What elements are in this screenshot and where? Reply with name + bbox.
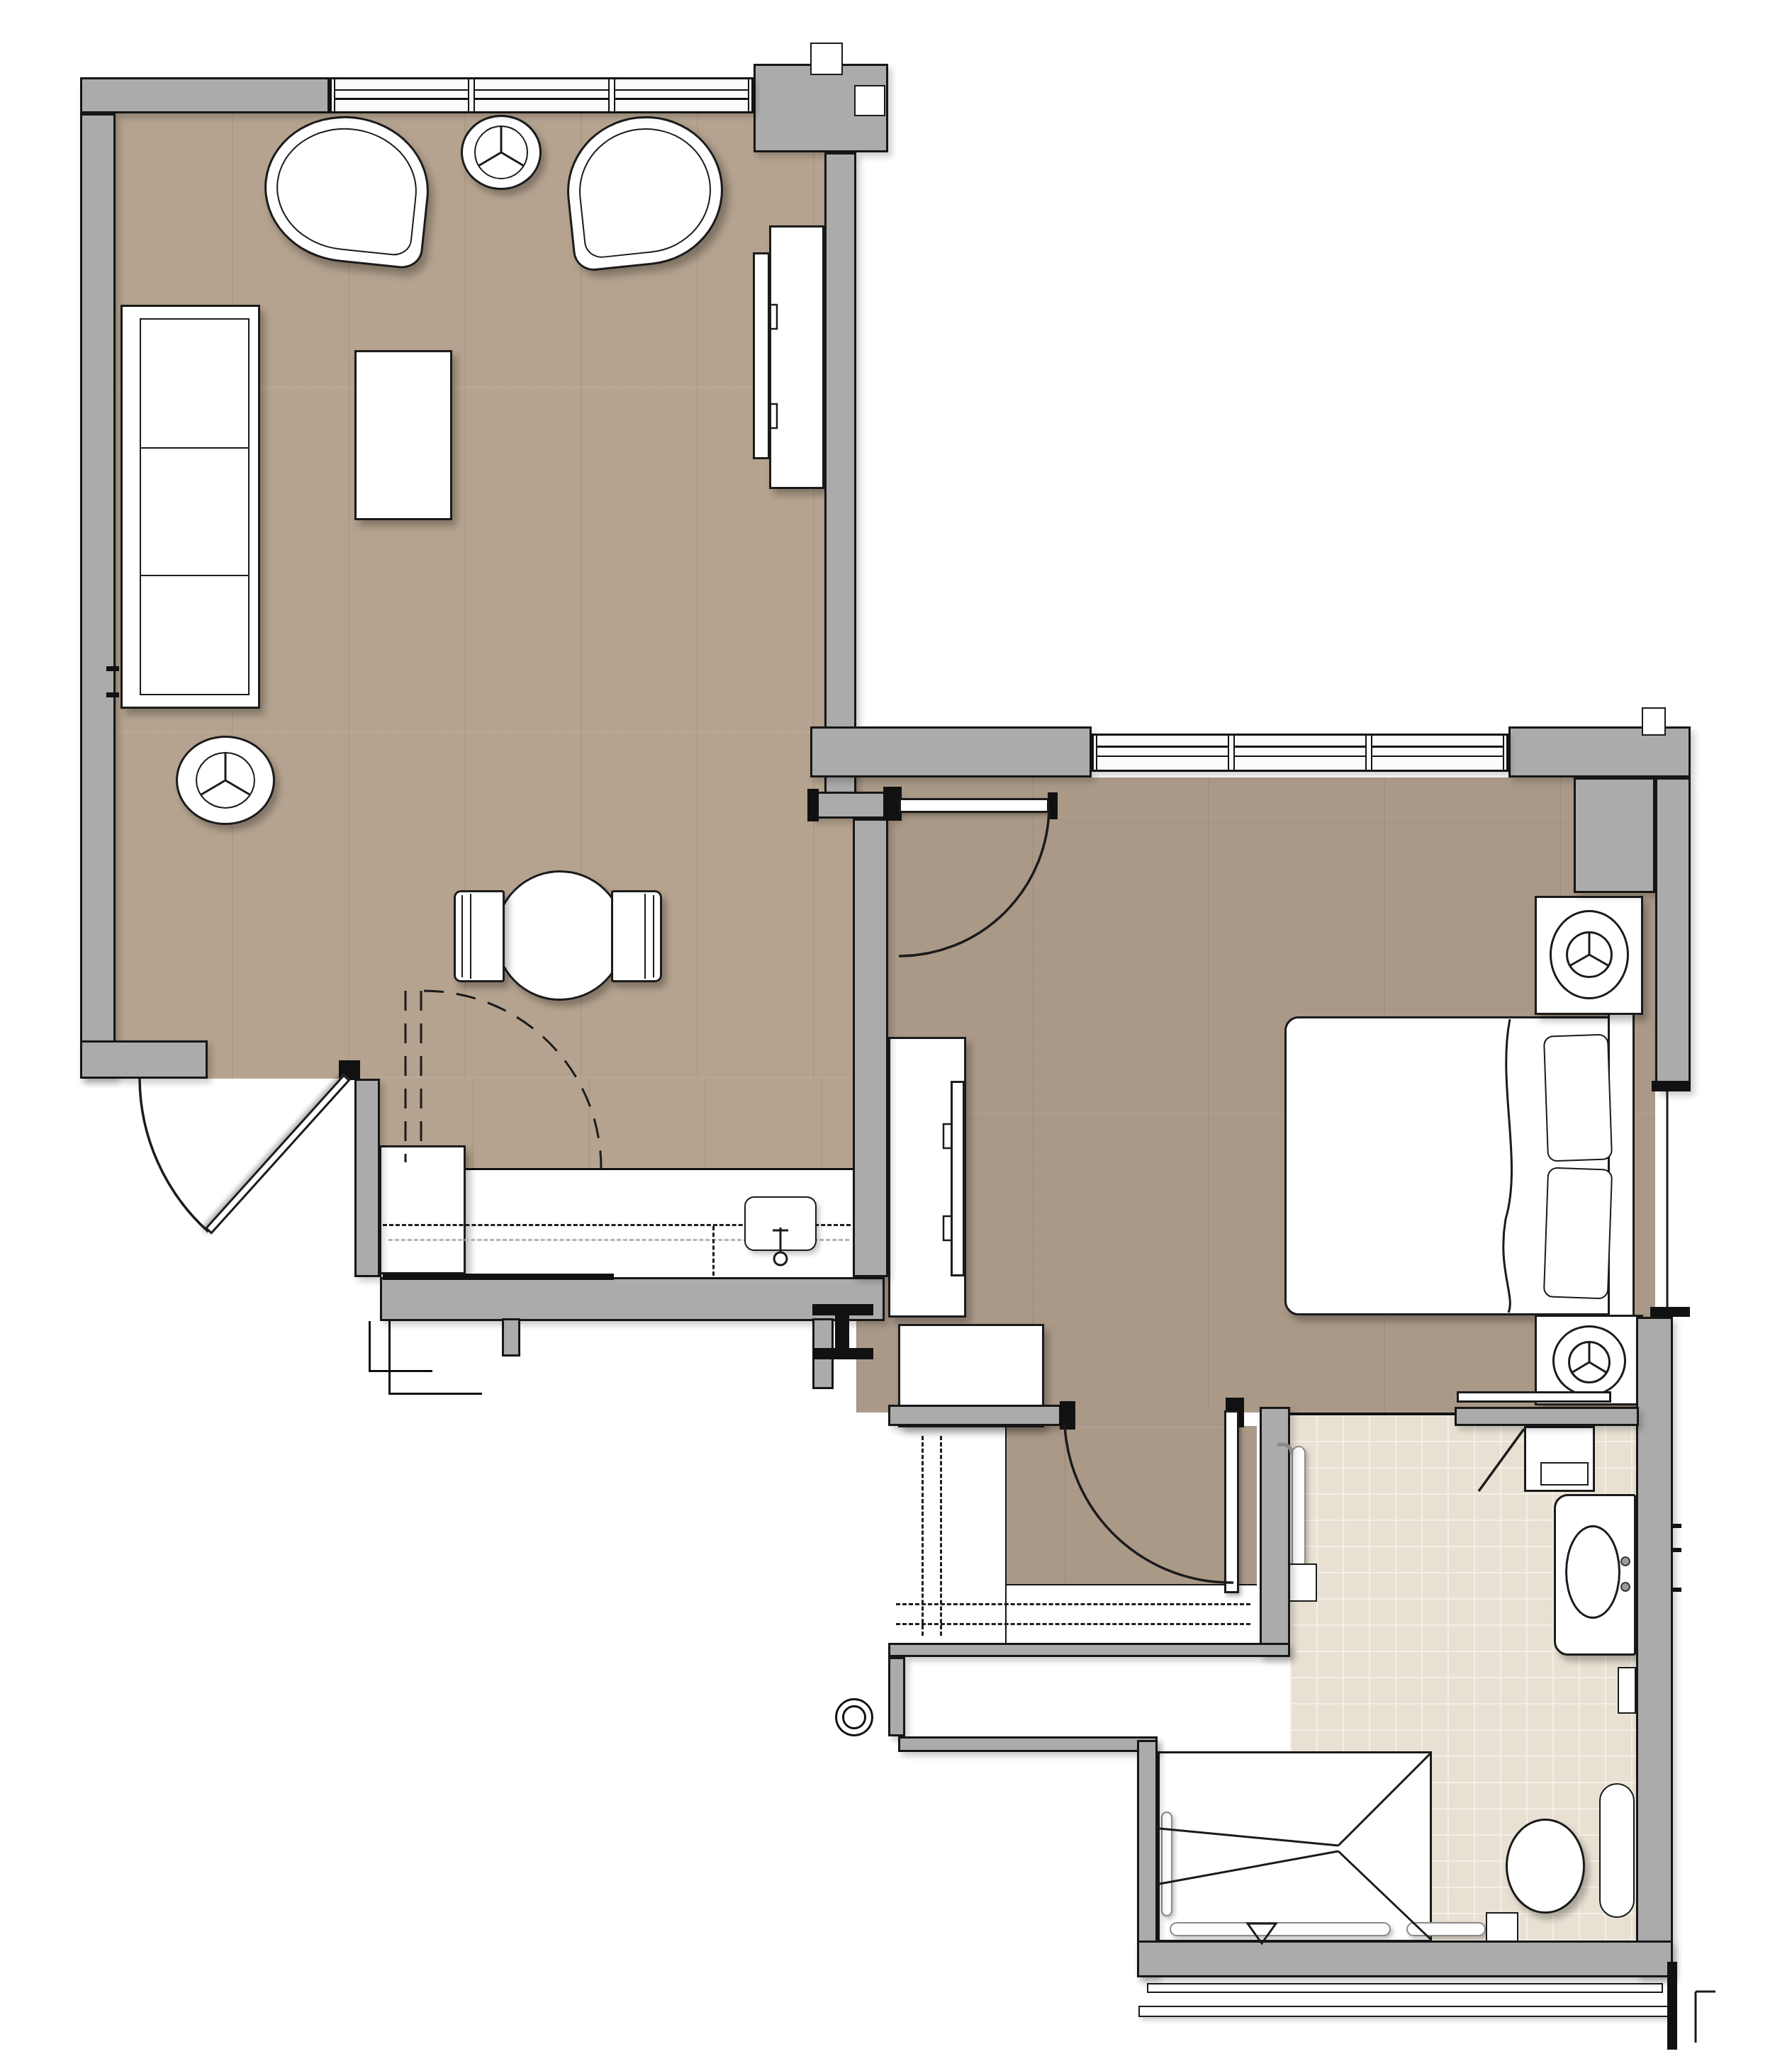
wall-bathroom-east [1636,1317,1673,1977]
window-pane [614,79,749,111]
wall-bedroom-nook-top [1574,777,1655,893]
kitchen-sink [744,1196,817,1251]
column-marker-square-3 [1642,707,1666,736]
closet-door-jamb-left [1060,1401,1075,1430]
vestibule-jamb-left [807,789,819,821]
wall-bedroom-east [1655,777,1691,1091]
wall-stub-below-kitchen-1 [502,1318,520,1357]
column-marker-square-1 [810,43,843,75]
bedroom-door-leaf [899,798,1049,813]
wall-closet-south [888,1643,1290,1657]
pillow-bottom [1543,1167,1613,1299]
refrigerator [379,1145,466,1274]
wall-living-east [824,152,856,794]
toilet-tank-grab [1599,1783,1635,1918]
wall-shower-north-exterior [898,1736,1158,1752]
entry-door-arc [140,1077,208,1232]
closet-door-leaf [1224,1410,1239,1593]
wall-living-north-left [80,77,330,113]
wall-kitchen-south [380,1277,885,1321]
closet-shelf-dashed-line [896,1623,1250,1625]
wall-bathroom-north [1455,1407,1639,1426]
headboard [1608,1011,1635,1320]
pillow-top [1543,1033,1613,1162]
window-pane [474,79,609,111]
wall-hall-west [853,819,888,1277]
grab-bar-south-1 [1170,1922,1391,1936]
linen-cabinet [1524,1426,1595,1492]
wall-bathroom-south [1137,1941,1673,1977]
bathroom-doorway-threshold [1290,1413,1455,1415]
sofa-cushion-divider [140,447,250,449]
left-wall-tick-2 [106,692,119,697]
grab-bar-south-2 [1406,1922,1486,1936]
living-tv [753,252,770,459]
closet-shelving-west [888,1426,1007,1643]
window-pane [334,79,469,111]
window-pane [1233,736,1367,770]
living-media-console [769,225,824,489]
lamp-north-inner [1566,931,1613,978]
wall-hall-north [810,726,1092,777]
wall-bathroom-west [1260,1407,1290,1657]
living-window [330,77,754,113]
wall-closet-southwest-stub [888,1657,905,1736]
wall-kitchen-west [354,1079,380,1277]
faucet-dot-1 [1620,1556,1630,1566]
patio-edge-line-1 [1147,1983,1663,1993]
bedroom-tv [951,1081,965,1276]
bedroom-wall-shelf [1457,1391,1611,1403]
chair-back-line [470,894,471,979]
closet-door-threshold [1070,1410,1233,1428]
window-pane [1096,736,1229,770]
shower-seat-box [1289,1563,1317,1602]
closet-shelving-south [1007,1584,1257,1643]
vanity-basin [1565,1525,1620,1619]
sofa [121,305,260,709]
lamp-south-inner [1568,1341,1611,1383]
chair-back-line [653,895,654,977]
sofa-seat [140,318,250,695]
closet-rod-dashed-line [940,1436,942,1636]
grab-bar-shower-west [1161,1812,1172,1916]
steel-beam-marker-top [812,1304,873,1315]
chair-back-line [644,894,646,979]
window-pane [1371,736,1504,770]
wall-cap-bedroom-east-lower [1650,1307,1690,1317]
pipe-riser-circle-inner [842,1705,866,1729]
chair-cushion-line [573,122,717,259]
dining-chair-west [454,890,505,982]
vestibule-jamb-right [1048,792,1058,819]
wall-living-west [80,113,116,1079]
wall-cap-bedroom-east-upper [1652,1081,1690,1091]
bath-east-dash-3 [1671,1588,1681,1592]
chair-back-line [461,895,463,977]
shower-control-box [1486,1912,1518,1942]
shower-pan [1158,1751,1432,1942]
linen-cabinet-shelf [1540,1462,1589,1486]
left-wall-tick-1 [106,666,119,671]
chair-cushion-line [271,121,423,257]
bath-east-dash-2 [1671,1548,1681,1552]
exterior-step-line-2 [388,1321,482,1395]
coffee-table [354,350,452,520]
toilet-bowl [1506,1819,1585,1914]
section-cut-marker [1667,1962,1677,2050]
sofa-cushion-divider [140,575,250,576]
dining-table [495,870,625,1001]
closet-shelf-dashed-line [896,1603,1250,1605]
column-marker-square-2 [854,85,885,116]
closet-rod-dashed-line [922,1436,924,1636]
steel-beam-marker-stem [835,1315,849,1348]
wall-living-south-left [80,1040,208,1079]
steel-beam-marker-bottom [812,1348,873,1359]
side-table-bottom-inner [196,752,255,809]
side-table-top-inner [474,125,528,179]
wall-closet-north [888,1405,1061,1426]
kitchen-counter-threshold [383,1274,614,1280]
section-marker-ticks [1696,1992,1715,2043]
bath-shelf-small [1618,1667,1636,1714]
patio-edge-line-2 [1138,2006,1669,2017]
bedroom-window [1092,734,1508,772]
dining-chair-east [611,890,662,982]
entry-door-leaf [205,1074,351,1234]
cabinet-divider-dashed [712,1226,715,1276]
faucet-dot-2 [1620,1582,1630,1592]
bath-east-dash-1 [1671,1524,1681,1528]
floor-plan [0,0,1792,2061]
